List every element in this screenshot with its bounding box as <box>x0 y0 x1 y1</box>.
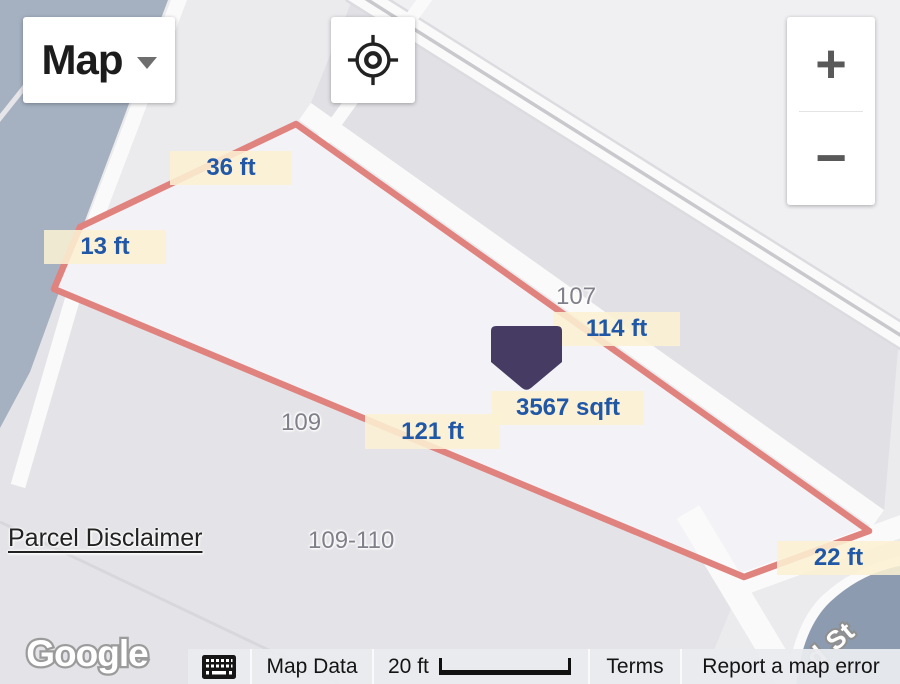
measurement-label-22ft: 22 ft <box>777 541 900 575</box>
parcel-area-label: 3567 sqft <box>492 391 644 425</box>
parcel-disclaimer-link[interactable]: Parcel Disclaimer <box>8 524 202 553</box>
scale-indicator: 20 ft <box>372 649 588 684</box>
zoom-out-button[interactable]: − <box>787 112 875 206</box>
crosshair-locate-icon <box>346 33 400 87</box>
map-type-button[interactable]: Map <box>23 17 175 103</box>
map-viewport[interactable]: d St 107 109 109-110 36 ft 13 ft 114 ft … <box>0 0 900 684</box>
report-map-error-link[interactable]: Report a map error <box>680 649 900 684</box>
parcel-marker-pin[interactable] <box>490 325 563 392</box>
google-logo[interactable]: Google <box>12 630 162 678</box>
triangle-down-icon <box>137 57 157 69</box>
minus-icon: − <box>815 131 847 185</box>
terms-link[interactable]: Terms <box>588 649 680 684</box>
my-location-button[interactable] <box>331 17 415 103</box>
map-type-button-label: Map <box>42 36 123 84</box>
measurement-label-114ft: 114 ft <box>553 312 680 346</box>
keyboard-icon <box>202 655 236 679</box>
lot-number-109: 109 <box>281 409 321 437</box>
measurement-label-121ft: 121 ft <box>365 414 500 449</box>
zoom-in-button[interactable]: + <box>787 17 875 111</box>
plus-icon: + <box>815 37 847 91</box>
scale-bar <box>439 658 571 675</box>
google-logo-text: Google <box>26 633 148 674</box>
report-map-error-text: Report a map error <box>702 655 879 679</box>
scale-text: 20 ft <box>388 655 429 679</box>
terms-text: Terms <box>606 655 663 679</box>
lot-number-107: 107 <box>556 283 596 311</box>
marker-shield-shape <box>491 326 562 390</box>
measurement-label-13ft: 13 ft <box>44 230 166 264</box>
lot-number-109-110: 109-110 <box>308 527 394 555</box>
attribution-bar: Map Data 20 ft Terms Report a map error <box>188 649 900 684</box>
map-data-text: Map Data <box>266 655 357 679</box>
keyboard-shortcuts-button[interactable] <box>188 649 250 684</box>
zoom-control: + − <box>787 17 875 205</box>
map-data-label: Map Data <box>250 649 372 684</box>
measurement-label-36ft: 36 ft <box>170 151 292 185</box>
